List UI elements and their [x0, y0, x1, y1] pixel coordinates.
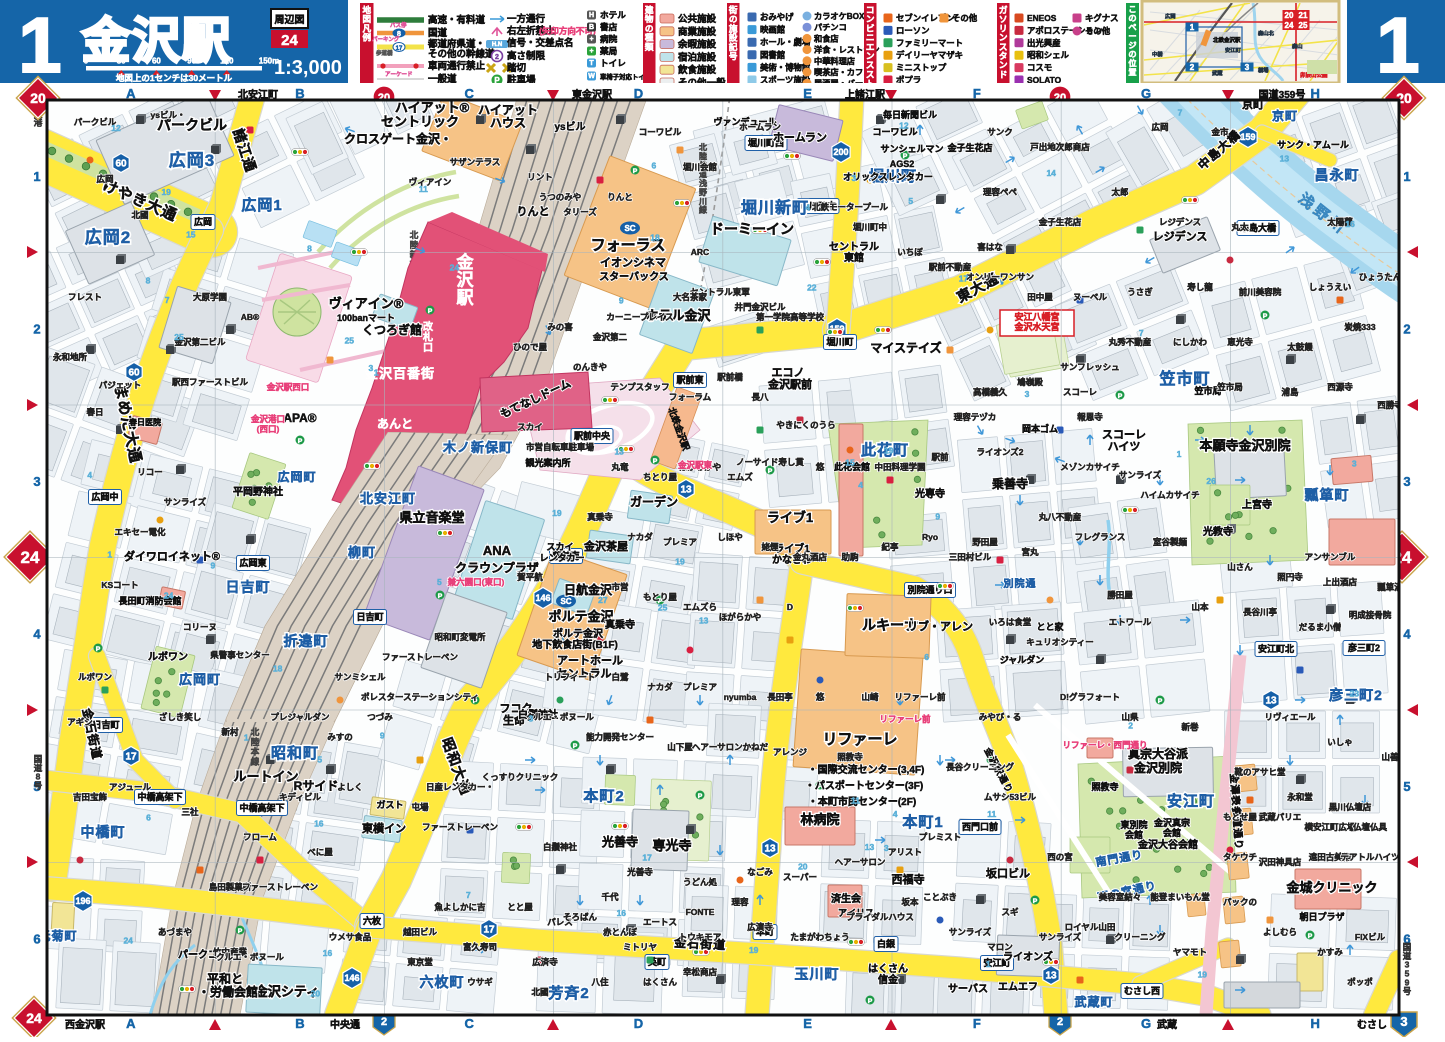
svg-text:ファーストレーベン: ファーストレーベン: [242, 882, 319, 892]
svg-text:エトワール: エトワール: [1109, 617, 1152, 627]
svg-text:2: 2: [1057, 1016, 1063, 1028]
svg-text:P: P: [96, 646, 101, 653]
svg-text:サンシェルマン: サンシェルマン: [880, 144, 943, 154]
svg-text:書店: 書店: [600, 21, 618, 32]
svg-text:nyumba: nyumba: [724, 692, 757, 702]
svg-text:車両通行禁止: 車両通行禁止: [428, 60, 486, 72]
svg-text:かすみ: かすみ: [1317, 947, 1343, 957]
svg-text:24: 24: [450, 262, 460, 272]
svg-text:・国際交流センター(3,4F): ・国際交流センター(3,4F): [808, 763, 925, 776]
svg-text:地図上の1センチは30メートル: 地図上の1センチは30メートル: [116, 73, 233, 83]
svg-text:坂口ビル: 坂口ビル: [986, 866, 1030, 880]
svg-text:安江八幡宮: 安江八幡宮: [1014, 311, 1059, 322]
svg-text:スギ: スギ: [1001, 907, 1019, 917]
svg-text:24: 24: [123, 936, 133, 946]
svg-text:サンライズ: サンライズ: [164, 497, 207, 507]
svg-text:カーニープレイス: カーニープレイス: [606, 312, 673, 322]
svg-text:駅前中央: 駅前中央: [574, 430, 611, 441]
svg-text:フレグランス: フレグランス: [1075, 532, 1126, 542]
svg-text:24: 24: [1285, 21, 1294, 30]
svg-text:エムズ: エムズ: [727, 472, 753, 482]
svg-text:坂本: 坂本: [901, 897, 919, 907]
svg-text:いろは食堂: いろは食堂: [989, 617, 1032, 627]
svg-text:ヴィアイン: ヴィアイン: [409, 177, 452, 187]
svg-text:田中屋: 田中屋: [1027, 292, 1053, 302]
svg-text:スターバックス: スターバックス: [599, 271, 669, 283]
svg-text:野田屋: 野田屋: [972, 537, 998, 547]
svg-text:G: G: [1141, 1016, 1151, 1031]
svg-text:14: 14: [1046, 168, 1056, 178]
svg-text:武蔵: 武蔵: [1157, 1018, 1177, 1031]
svg-text:20: 20: [311, 988, 321, 998]
svg-text:本町1: 本町1: [902, 813, 943, 831]
svg-text:玉川町: 玉川町: [795, 966, 840, 982]
svg-text:広岡中: 広岡中: [91, 491, 118, 502]
svg-text:13: 13: [865, 842, 875, 852]
svg-text:ナカダ: ナカダ: [647, 682, 673, 692]
svg-text:サンライズ: サンライズ: [1039, 932, 1082, 942]
svg-text:西源寺: 西源寺: [1327, 382, 1353, 392]
svg-text:7: 7: [1139, 328, 1144, 338]
svg-text:ちとり屋: ちとり屋: [643, 472, 678, 482]
svg-text:しょうえい: しょうえい: [1309, 282, 1352, 292]
svg-text:中橋高架下: 中橋高架下: [239, 802, 284, 813]
svg-text:アリスト: アリスト: [888, 847, 922, 857]
svg-text:炭焼333: 炭焼333: [1344, 322, 1375, 332]
svg-text:ざしき笑し: ざしき笑し: [159, 712, 202, 722]
svg-text:0: 0: [84, 57, 89, 66]
svg-text:観光案内所: 観光案内所: [525, 457, 570, 468]
svg-text:魚よしかに吉: 魚よしかに吉: [434, 902, 486, 912]
svg-text:エキセー電化: エキセー電化: [114, 527, 166, 537]
svg-text:ことぶき: ことぶき: [923, 892, 957, 902]
svg-text:アギシ: アギシ: [67, 717, 93, 727]
svg-text:寿し龍: 寿し龍: [1186, 282, 1213, 292]
svg-text:号: 号: [34, 781, 43, 791]
svg-text:周辺図: 周辺図: [275, 14, 305, 26]
svg-text:15: 15: [845, 458, 855, 468]
svg-text:19: 19: [1198, 970, 1208, 980]
svg-text:報恩寺: 報恩寺: [1077, 412, 1103, 422]
svg-text:平岡野神社: 平岡野神社: [233, 485, 283, 498]
svg-text:20: 20: [30, 90, 46, 106]
svg-text:3: 3: [852, 173, 857, 183]
svg-text:3: 3: [884, 843, 889, 853]
svg-text:真乗寺: 真乗寺: [587, 512, 613, 522]
svg-text:金沢駅西口: 金沢駅西口: [266, 382, 310, 392]
svg-text:北鉄金沢駅: 北鉄金沢駅: [1213, 36, 1241, 44]
svg-text:3: 3: [1403, 474, 1410, 489]
svg-text:アジュール: アジュール: [109, 782, 151, 792]
svg-text:いちぼ: いちぼ: [897, 247, 923, 257]
svg-text:19: 19: [161, 187, 171, 197]
svg-text:和食店: 和食店: [813, 33, 839, 43]
svg-text:こ: こ: [1128, 5, 1136, 14]
svg-text:信号・交差点名: 信号・交差点名: [507, 37, 574, 49]
svg-text:だるま小僧: だるま小僧: [1299, 622, 1342, 632]
svg-text:P: P: [438, 593, 443, 600]
svg-text:20: 20: [798, 861, 808, 871]
svg-text:キディビル: キディビル: [279, 792, 321, 802]
svg-text:光善寺: 光善寺: [601, 834, 638, 849]
svg-text:永和地所: 永和地所: [52, 352, 88, 362]
svg-text:武蔵パリエ: 武蔵パリエ: [1259, 812, 1302, 822]
svg-text:金沢港口: 金沢港口: [250, 414, 285, 424]
svg-text:北安江町: 北安江町: [360, 491, 416, 506]
svg-text:西福寺: 西福寺: [892, 872, 925, 886]
svg-text:テンプスタッフ: テンプスタッフ: [610, 382, 669, 392]
svg-text:中央通: 中央通: [330, 1018, 360, 1031]
svg-text:バス停: バス停: [390, 21, 407, 29]
svg-text:むさし: むさし: [1357, 1019, 1387, 1031]
svg-text:折違町: 折違町: [284, 633, 329, 649]
svg-text:沢田神具店: 沢田神具店: [1259, 857, 1302, 867]
svg-text:踏切: 踏切: [507, 62, 527, 74]
svg-text:9: 9: [619, 295, 624, 305]
svg-text:20: 20: [1285, 11, 1294, 20]
svg-text:1: 1: [1403, 169, 1410, 184]
svg-text:1: 1: [18, 1, 61, 89]
svg-text:13: 13: [614, 447, 624, 457]
svg-text:+: +: [589, 36, 593, 43]
svg-text:武蔵町: 武蔵町: [1074, 994, 1113, 1009]
svg-text:日吉町: 日吉町: [226, 579, 271, 595]
svg-text:FIXビル: FIXビル: [1355, 932, 1386, 942]
svg-text:りんと: りんと: [517, 205, 550, 218]
svg-text:9: 9: [935, 512, 940, 522]
svg-text:明成接骨院: 明成接骨院: [1349, 610, 1392, 620]
svg-text:東館: 東館: [844, 251, 864, 264]
svg-text:C: C: [465, 1016, 475, 1031]
svg-text:H: H: [589, 12, 594, 19]
svg-text:信金: 信金: [878, 973, 899, 986]
svg-text:新村: 新村: [221, 727, 239, 737]
svg-text:P: P: [698, 793, 703, 800]
svg-text:堀川町中: 堀川町中: [853, 222, 887, 232]
svg-text:ひょうたん: ひょうたん: [1359, 272, 1402, 282]
svg-text:クリーニング: クリーニング: [1114, 932, 1166, 942]
svg-text:札: 札: [422, 330, 433, 343]
svg-text:P: P: [428, 308, 433, 315]
svg-text:勝田屋: 勝田屋: [1107, 590, 1133, 600]
svg-text:5: 5: [1403, 779, 1410, 794]
svg-text:広岡2: 広岡2: [85, 227, 131, 247]
svg-text:ムサシ53ビル: ムサシ53ビル: [984, 792, 1036, 802]
svg-text:キグナス: キグナス: [1085, 13, 1119, 23]
svg-text:永和堂: 永和堂: [1286, 792, 1313, 802]
svg-text:16: 16: [323, 948, 333, 958]
svg-text:リファーレ前: リファーレ前: [879, 714, 931, 724]
svg-text:1: 1: [1177, 449, 1182, 459]
svg-text:9: 9: [380, 731, 385, 741]
svg-text:120: 120: [220, 57, 234, 66]
svg-text:越田ビル: 越田ビル: [402, 927, 438, 937]
svg-text:丸太: 丸太: [1230, 222, 1249, 232]
svg-text:APA®: APA®: [283, 411, 316, 425]
svg-text:P: P: [238, 928, 243, 935]
svg-text:11: 11: [851, 796, 860, 806]
svg-text:プライダルハウス: プライダルハウス: [846, 912, 914, 922]
svg-text:P: P: [1118, 393, 1123, 400]
svg-text:P: P: [1158, 698, 1163, 705]
svg-text:昭和町: 昭和町: [271, 745, 319, 762]
svg-text:太郎: 太郎: [1110, 187, 1129, 197]
svg-text:・労働会館: ・労働会館: [198, 984, 258, 999]
svg-text:P: P: [1308, 933, 1313, 940]
svg-text:ミニストップ: ミニストップ: [896, 63, 947, 73]
svg-text:ホームラン: ホームラン: [773, 131, 827, 144]
svg-text:4: 4: [1403, 627, 1411, 642]
svg-text:146: 146: [344, 973, 359, 983]
svg-text:1: 1: [33, 169, 40, 184]
svg-text:ハイアット®: ハイアット®: [395, 100, 470, 115]
svg-text:映画館: 映画館: [760, 25, 785, 35]
svg-text:助駒: 助駒: [841, 552, 859, 562]
svg-text:悠: 悠: [815, 462, 825, 472]
svg-text:リファーレ・西門通り: リファーレ・西門通り: [1062, 740, 1147, 750]
svg-text:ジ: ジ: [1128, 41, 1136, 50]
svg-text:サーバス: サーバス: [948, 983, 988, 995]
svg-text:P: P: [633, 168, 638, 175]
svg-text:P: P: [298, 438, 303, 445]
svg-text:1: 1: [244, 733, 249, 743]
svg-text:21: 21: [1299, 11, 1308, 20]
svg-text:金丸酒店: 金丸酒店: [792, 552, 828, 562]
svg-text:ナカダ: ナカダ: [627, 532, 653, 542]
svg-text:東京堂: 東京堂: [407, 957, 433, 967]
svg-text:陸: 陸: [251, 737, 260, 747]
svg-text:ー: ー: [1128, 32, 1136, 41]
svg-text:タケウチ: タケウチ: [1223, 852, 1257, 862]
svg-text:沢: 沢: [457, 270, 475, 290]
svg-text:サンフレッシュ: サンフレッシュ: [1060, 362, 1119, 372]
svg-text:サンミシェル: サンミシェル: [334, 672, 386, 682]
svg-text:レジデンス: レジデンス: [1159, 217, 1201, 227]
svg-text:赤とんぼ: 赤とんぼ: [603, 927, 638, 937]
svg-text:丸八不動産: 丸八不動産: [1038, 512, 1082, 522]
svg-text:スカイ: スカイ: [546, 542, 573, 552]
svg-text:18: 18: [273, 664, 283, 674]
svg-text:恵光寺: 恵光寺: [1227, 337, 1253, 347]
svg-text:ライブ1: ライブ1: [767, 510, 813, 525]
svg-text:金沢真宗: 金沢真宗: [1153, 817, 1190, 828]
svg-text:W: W: [588, 73, 595, 80]
svg-text:駅前橋: 駅前橋: [717, 372, 743, 382]
svg-text:2: 2: [1128, 721, 1133, 731]
svg-text:16: 16: [1345, 219, 1355, 229]
svg-text:別院通: 別院通: [1003, 577, 1037, 590]
svg-text:1: 1: [1376, 1, 1419, 89]
svg-text:その他: その他: [952, 13, 978, 23]
svg-text:理容ペペ: 理容ペペ: [983, 187, 1018, 197]
svg-text:26: 26: [1206, 476, 1216, 486]
svg-text:橋場: 橋場: [1258, 66, 1269, 74]
svg-text:おみやげ: おみやげ: [760, 12, 794, 22]
svg-text:戸出地次郎商店: 戸出地次郎商店: [1030, 142, 1090, 152]
svg-text:トリフィート: トリフィート: [545, 672, 596, 682]
svg-text:17: 17: [125, 752, 137, 763]
svg-text:いしゃ: いしゃ: [1327, 737, 1353, 747]
svg-text:県立音楽堂: 県立音楽堂: [399, 510, 464, 525]
svg-text:中橋町: 中橋町: [81, 824, 126, 840]
svg-text:その他: その他: [1085, 26, 1111, 36]
svg-text:川: 川: [698, 197, 707, 206]
svg-text:井門金沢ビル: 井門金沢ビル: [734, 302, 786, 312]
svg-text:うどん処: うどん処: [683, 877, 718, 887]
svg-text:リブ・アレン: リブ・アレン: [907, 619, 973, 633]
svg-text:あづまや: あづまや: [158, 927, 192, 937]
svg-text:4: 4: [858, 480, 863, 490]
svg-text:山さん: 山さん: [1227, 562, 1253, 572]
svg-text:ARC: ARC: [691, 247, 709, 257]
svg-text:靴のアサヒ堂: 靴のアサヒ堂: [1234, 767, 1286, 777]
svg-text:高橋義久: 高橋義久: [973, 387, 1008, 397]
svg-text:Rサイド: Rサイド: [294, 779, 339, 793]
svg-text:H.N: H.N: [492, 42, 502, 48]
svg-text:13: 13: [1280, 153, 1290, 163]
svg-text:広岡: 広岡: [1151, 122, 1168, 132]
svg-text:23: 23: [1350, 688, 1360, 698]
svg-text:H: H: [1311, 1016, 1320, 1031]
svg-text:済生会: 済生会: [831, 892, 861, 905]
svg-text:歩道橋: 歩道橋: [376, 49, 393, 57]
svg-text:8: 8: [307, 243, 312, 253]
svg-text:6: 6: [924, 652, 929, 662]
svg-text:ANA: ANA: [483, 543, 512, 558]
svg-text:ジャルダン: ジャルダン: [1000, 654, 1045, 665]
svg-text:能力開発センター: 能力開発センター: [586, 732, 654, 742]
svg-text:日産レンタカー・: 日産レンタカー・: [426, 782, 494, 792]
svg-text:駅前: 駅前: [931, 452, 949, 462]
svg-text:金沢茶屋: 金沢茶屋: [583, 539, 628, 553]
svg-text:ハウス: ハウス: [490, 116, 526, 130]
svg-text:キュリオシティー: キュリオシティー: [1026, 637, 1094, 647]
svg-text:15: 15: [186, 230, 196, 240]
svg-text:紀亭: 紀亭: [881, 542, 899, 552]
svg-text:東別院: 東別院: [1120, 819, 1147, 830]
svg-text:朝日プラザ: 朝日プラザ: [1299, 911, 1344, 922]
svg-text:P: P: [1263, 313, 1268, 320]
svg-text:広済寺: 広済寺: [532, 957, 558, 967]
svg-text:たまがわちょう: たまがわちょう: [790, 932, 849, 942]
svg-text:D: D: [634, 1016, 643, 1031]
svg-text:13: 13: [680, 485, 692, 496]
svg-text:賀平航: 賀平航: [516, 572, 543, 582]
svg-text:美容室結々: 美容室結々: [1099, 892, 1142, 902]
svg-text:幸松商店: 幸松商店: [683, 967, 718, 977]
svg-text:サンライズ: サンライズ: [1119, 470, 1162, 480]
svg-text:林病院: 林病院: [800, 812, 839, 827]
svg-text:むさし西: むさし西: [1124, 986, 1160, 996]
svg-text:金沢大谷会館: 金沢大谷会館: [1137, 838, 1198, 851]
svg-text:線: 線: [699, 205, 707, 215]
svg-text:7: 7: [165, 295, 170, 305]
svg-text:4: 4: [893, 809, 898, 819]
svg-text:の: の: [1128, 50, 1136, 59]
svg-text:12: 12: [111, 123, 121, 133]
svg-text:六枚: 六枚: [363, 915, 382, 926]
svg-text:金沢駅東: 金沢駅東: [677, 460, 713, 470]
svg-text:9: 9: [211, 560, 216, 570]
svg-text:安江町: 安江町: [1225, 46, 1242, 54]
svg-text:アレンジ: アレンジ: [773, 747, 808, 757]
svg-text:13: 13: [1265, 696, 1277, 707]
svg-text:よしむら: よしむら: [1263, 927, 1297, 937]
svg-text:駅: 駅: [456, 288, 475, 307]
svg-text:24: 24: [21, 548, 40, 567]
svg-text:横安江町広場: 横安江町広場: [1303, 822, 1356, 832]
svg-text:金子生花店: 金子生花店: [946, 142, 992, 153]
svg-text:森山: 森山: [1292, 42, 1303, 50]
svg-text:太鼓饅: 太鼓饅: [1286, 342, 1313, 352]
svg-text:吉田宝飾: 吉田宝飾: [73, 792, 108, 802]
svg-text:病院: 病院: [600, 33, 618, 44]
svg-text:3: 3: [1245, 63, 1250, 72]
svg-text:大原学園: 大原学園: [193, 292, 227, 302]
svg-text:6: 6: [652, 161, 657, 171]
svg-text:3: 3: [33, 474, 40, 489]
svg-text:ドーミーイン: ドーミーイン: [710, 221, 794, 237]
svg-text:類: 類: [644, 41, 654, 52]
svg-text:北: 北: [410, 230, 419, 240]
svg-text:ハイムカサイチ: ハイムカサイチ: [1140, 490, 1199, 500]
svg-text:浦島: 浦島: [1281, 387, 1299, 397]
svg-text:のんきや: のんきや: [573, 362, 607, 372]
svg-text:みやび・る: みやび・る: [979, 712, 1022, 722]
svg-text:笠市局: 笠市局: [1216, 382, 1243, 392]
svg-text:イオンシネマ: イオンシネマ: [600, 256, 666, 269]
svg-text:姥煙: 姥煙: [761, 542, 779, 552]
svg-text:3: 3: [1400, 1014, 1407, 1029]
svg-text:25: 25: [1299, 21, 1308, 30]
svg-text:クロスゲート金沢・: クロスゲート金沢・: [344, 131, 452, 146]
svg-text:丸竜: 丸竜: [610, 462, 629, 472]
svg-text:武蔵: 武蔵: [1212, 69, 1223, 77]
svg-text:KSコート: KSコート: [101, 580, 138, 590]
svg-text:大名茶家: 大名茶家: [673, 292, 708, 302]
svg-text:リヴィエール: リヴィエール: [1264, 712, 1316, 722]
svg-text:出光興産: 出光興産: [1027, 38, 1061, 48]
svg-text:室谷製麺: 室谷製麺: [1153, 537, 1188, 547]
svg-text:ヘアーサロン: ヘアーサロン: [835, 857, 886, 867]
svg-text:三社: 三社: [181, 807, 199, 817]
svg-text:金市: 金市: [1210, 127, 1229, 137]
svg-text:25: 25: [174, 332, 184, 342]
svg-text:宿泊施設: 宿泊施設: [678, 51, 717, 63]
svg-text:アートホール: アートホール: [557, 654, 623, 667]
svg-text:4: 4: [87, 470, 92, 480]
svg-text:150m: 150m: [259, 57, 279, 66]
svg-text:白鷺: 白鷺: [611, 672, 629, 682]
svg-text:長谷クリーニング: 長谷クリーニング: [946, 762, 1015, 772]
svg-text:24: 24: [281, 32, 298, 49]
svg-text:コーワビル: コーワビル: [872, 126, 917, 137]
svg-text:1:3,000: 1:3,000: [274, 57, 342, 79]
svg-text:タリーズ: タリーズ: [563, 207, 597, 217]
svg-text:北鉄モータープール: 北鉄モータープール: [812, 202, 888, 212]
svg-text:照教寺: 照教寺: [837, 752, 863, 762]
svg-text:広岡町: 広岡町: [277, 469, 316, 484]
svg-text:中華料理店: 中華料理店: [814, 56, 855, 66]
svg-text:ポレスターステーションシティ: ポレスターステーションシティ: [361, 692, 479, 702]
svg-text:くっすりクリニック: くっすりクリニック: [482, 772, 559, 782]
svg-text:駅前東: 駅前東: [676, 374, 703, 385]
svg-text:森山北: 森山北: [1258, 29, 1275, 37]
svg-text:専光寺: 専光寺: [652, 838, 691, 853]
svg-text:長田亭: 長田亭: [767, 692, 793, 702]
svg-text:富久寿司: 富久寿司: [463, 942, 497, 952]
svg-text:会館: 会館: [1125, 829, 1143, 840]
